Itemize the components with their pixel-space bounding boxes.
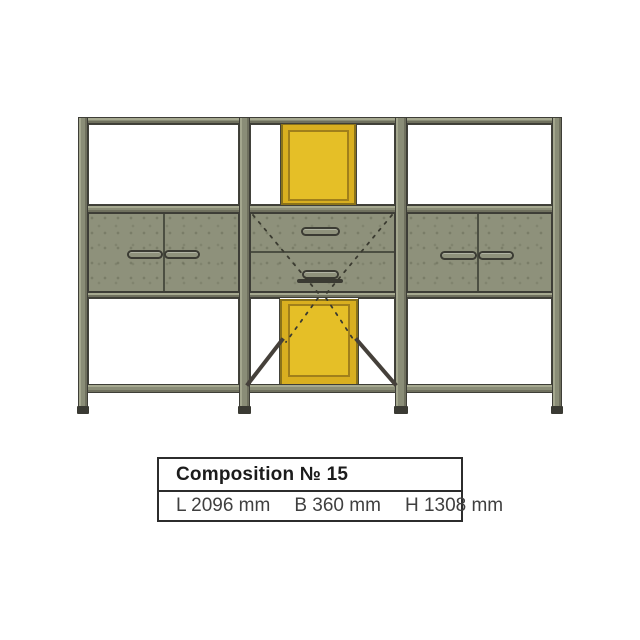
dimension-length: L 2096 mm [176, 495, 270, 517]
dimension-height: H 1308 mm [405, 495, 503, 517]
composition-title: Composition № 15 [176, 464, 348, 486]
dimension-width: B 360 mm [294, 495, 381, 517]
dashed-line [326, 298, 355, 342]
opening-direction-lines [0, 0, 640, 640]
spec-box: Composition № 15 L 2096 mm B 360 mm H 13… [157, 457, 463, 522]
dashed-line [286, 298, 318, 342]
furniture-diagram [0, 0, 640, 640]
page: Composition № 15 L 2096 mm B 360 mm H 13… [0, 0, 640, 640]
spec-title-row: Composition № 15 [159, 459, 461, 492]
diagonal-brace [248, 340, 282, 384]
dashed-line [253, 215, 319, 294]
diagonal-brace [357, 340, 395, 384]
dimensions-row: L 2096 mm B 360 mm H 1308 mm [159, 492, 461, 520]
dashed-line [326, 215, 392, 294]
